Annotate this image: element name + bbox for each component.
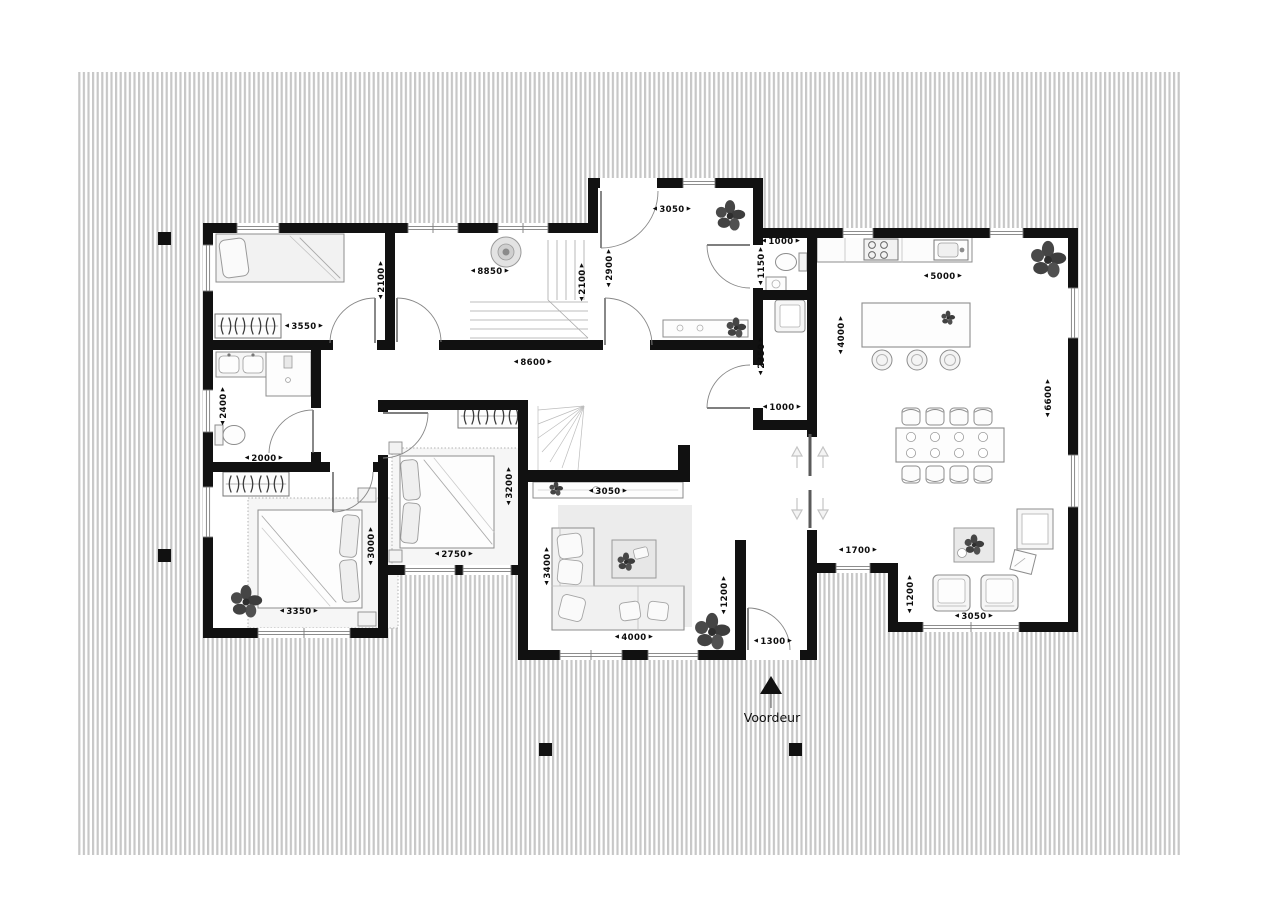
dim-nook-depth: 1200 [906, 575, 916, 614]
dim-entry-width: 3050 [653, 205, 692, 215]
dim-sofa-width: 4000 [615, 633, 654, 643]
window [498, 223, 548, 233]
deck-post [539, 743, 552, 756]
vanity-icon [216, 352, 266, 377]
dim-wc-depth: 1150 [757, 247, 767, 286]
window [990, 228, 1023, 238]
dim-living-depth: 3400 [543, 547, 553, 586]
window [683, 178, 715, 188]
stool-icon [940, 350, 960, 370]
window [408, 223, 458, 233]
dim-kitchen-depth: 6600 [1044, 379, 1054, 418]
floor-plan-drawing [0, 0, 1280, 905]
dim-kitchen-width: 5000 [924, 272, 963, 282]
armchair-icon [933, 575, 970, 611]
dim-sideboard-width: 3050 [589, 487, 628, 497]
dim-landing-width: 8850 [471, 267, 510, 277]
window [203, 487, 213, 537]
window [203, 245, 213, 291]
double-bed-icon [258, 510, 362, 608]
dim-bedroom1-width: 3550 [285, 322, 324, 332]
dim-storage-depth: 2350 [757, 337, 767, 376]
dim-nook-width: 3050 [955, 612, 994, 622]
dim-bedroom1-depth: 2100 [377, 261, 387, 300]
dim-kitchen-island-depth: 4000 [837, 316, 847, 355]
dim-entry-depth: 2900 [605, 249, 615, 288]
wardrobe-icon [215, 314, 281, 338]
dim-bedroom3-width: 3350 [280, 607, 319, 617]
wardrobe-icon [223, 472, 289, 496]
dim-wc-width: 1000 [762, 237, 801, 247]
boiler-icon [775, 300, 805, 332]
armchair-icon [981, 575, 1018, 611]
stool-icon [907, 350, 927, 370]
dim-hallway-width: 8600 [514, 358, 553, 368]
window [836, 563, 870, 573]
kitchen-island-icon [862, 303, 970, 347]
dim-front-door-width: 1300 [754, 637, 793, 647]
sink-icon [766, 277, 786, 291]
front-door-label: Voordeur [744, 710, 800, 725]
window [1068, 288, 1078, 338]
window [843, 228, 873, 238]
dim-passage-width: 1700 [839, 546, 878, 556]
stool-icon [872, 350, 892, 370]
window [258, 628, 350, 638]
dim-landing-depth: 2100 [578, 263, 588, 302]
window [648, 650, 698, 660]
double-bed-icon [400, 456, 494, 548]
ceiling-lamp-icon [491, 237, 521, 267]
toilet-icon [215, 425, 245, 445]
toilet-icon [776, 253, 808, 271]
deck-post [789, 743, 802, 756]
dim-bedroom2-depth: 3200 [505, 467, 515, 506]
floor-plan-canvas: 3550 2100 8850 2100 3050 2900 1000 1150 … [0, 0, 1280, 905]
window [203, 390, 213, 432]
dim-bathroom-depth: 2400 [219, 387, 229, 426]
dim-bedroom3-depth: 3000 [367, 527, 377, 566]
window [560, 650, 622, 660]
single-bed-icon [216, 234, 344, 282]
deck-post [158, 549, 171, 562]
nightstand-icon [389, 442, 402, 454]
dim-bathroom-width: 2000 [245, 454, 284, 464]
dining-set-icon [896, 408, 1004, 483]
window [405, 565, 455, 575]
nightstand-icon [358, 488, 376, 502]
dim-bedroom2-width: 2750 [435, 550, 474, 560]
window [923, 622, 1019, 632]
nightstand-icon [389, 550, 402, 562]
window [463, 565, 511, 575]
deck-post [158, 232, 171, 245]
kitchen-counter-icon [817, 237, 972, 262]
cooktop-icon [864, 239, 898, 260]
window [237, 223, 279, 233]
kitchen-sink-icon [934, 240, 968, 260]
shower-icon [266, 352, 311, 396]
dim-storage-width: 1000 [763, 403, 802, 413]
nightstand-icon [358, 612, 376, 626]
window [1068, 455, 1078, 507]
dim-vestibule-depth: 1200 [720, 576, 730, 615]
